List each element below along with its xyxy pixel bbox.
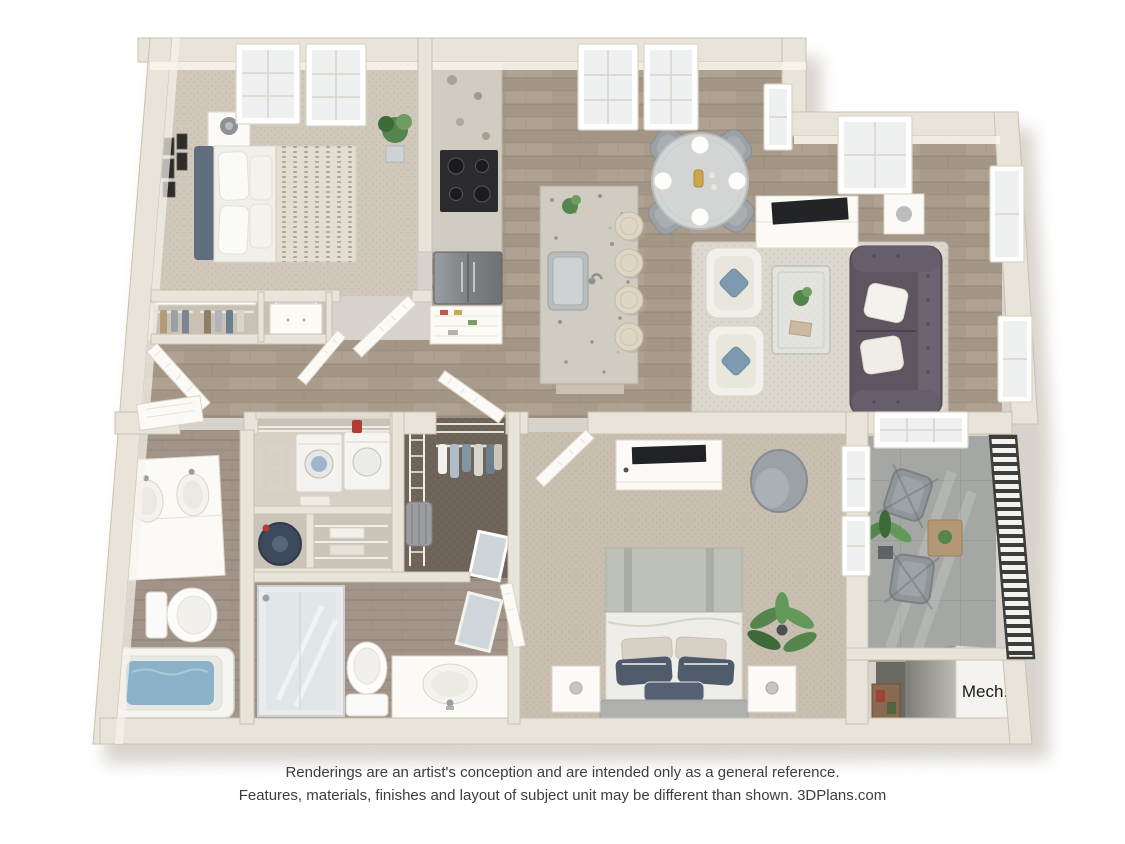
bed (600, 548, 748, 722)
pillow (218, 205, 249, 254)
sliding-glass-door (874, 412, 968, 448)
disclaimer-line-1: Renderings are an artist's conception an… (0, 761, 1125, 784)
window (236, 44, 300, 124)
bottle (694, 170, 703, 187)
shower-head (263, 595, 270, 602)
window (764, 84, 792, 150)
lamp (766, 682, 778, 694)
detergent-bottle (352, 420, 362, 433)
pillow (218, 151, 249, 200)
disclaimer-line-2: Features, materials, finishes and layout… (0, 784, 1125, 807)
linens (330, 545, 364, 555)
dining-table (652, 133, 748, 229)
lamp (570, 682, 582, 694)
closet-divider (258, 292, 264, 342)
dryer (344, 432, 390, 490)
window (838, 116, 912, 194)
plate (654, 172, 672, 190)
patterned-duvet (276, 146, 356, 262)
bedroom1-bottom-wall (412, 290, 432, 302)
plate (728, 172, 746, 190)
nightstand (748, 666, 796, 712)
mech-label: Mech. (962, 682, 1008, 701)
bedroom1-bottom-wall (151, 290, 340, 302)
pantry (430, 306, 502, 344)
accent-chair (751, 450, 807, 512)
floor-plan-page: Mech. (0, 0, 1125, 844)
dresser (616, 440, 722, 490)
bed (194, 146, 356, 262)
faucet (447, 700, 454, 707)
shower (258, 586, 344, 716)
window (644, 44, 698, 130)
closet-front-wall (151, 334, 332, 344)
bedroom1-kitchen-wall (418, 38, 432, 252)
headboard (194, 146, 215, 260)
range (440, 150, 498, 212)
nightstand (552, 666, 600, 712)
shipping-crate (872, 684, 900, 722)
plate (691, 208, 709, 226)
wh-linen-divider (306, 514, 314, 572)
window (998, 316, 1032, 402)
book (789, 321, 812, 337)
bath-water (126, 661, 214, 705)
window (842, 516, 870, 576)
bathroom2-top-wall (254, 572, 470, 582)
window (578, 44, 638, 130)
side-table (884, 194, 924, 234)
coffee-table (772, 266, 830, 354)
lumbar-pillow (644, 682, 704, 702)
linens (330, 528, 364, 538)
pillow (250, 156, 272, 200)
sofa-pillow (860, 335, 905, 375)
walkin-left-wall (392, 412, 404, 578)
navy-pillow (677, 656, 735, 686)
vanity (392, 656, 510, 720)
folded-towels (300, 496, 330, 506)
patio-table (928, 520, 962, 556)
refrigerator (434, 252, 502, 304)
armchair (708, 326, 764, 396)
sofa (850, 246, 942, 416)
dresser (270, 304, 322, 336)
bathroom1-right-wall (240, 430, 254, 724)
floor-plan-image: Mech. (0, 0, 1125, 844)
disclaimer: Renderings are an artist's conception an… (0, 761, 1125, 807)
tv-console (756, 196, 858, 248)
mid-right-wall (508, 412, 520, 724)
window (990, 166, 1024, 262)
window (842, 446, 870, 512)
toilet (146, 588, 217, 642)
washer (296, 434, 342, 492)
closet-divider (326, 292, 332, 342)
suitcase (406, 502, 432, 546)
laundry-bottom-wall (254, 506, 392, 514)
water-heater-closet (259, 523, 301, 565)
faucet (589, 278, 596, 285)
tv (632, 445, 707, 465)
armchair (706, 248, 762, 318)
dining-area (644, 123, 758, 238)
balcony-bottom-wall (846, 648, 1024, 660)
exterior-bottom-wall (100, 718, 1024, 744)
pillow (250, 204, 272, 248)
navy-pillow (615, 656, 673, 686)
window (306, 44, 366, 126)
plate (691, 136, 709, 154)
toilet (346, 642, 388, 716)
table-plant (938, 530, 952, 544)
